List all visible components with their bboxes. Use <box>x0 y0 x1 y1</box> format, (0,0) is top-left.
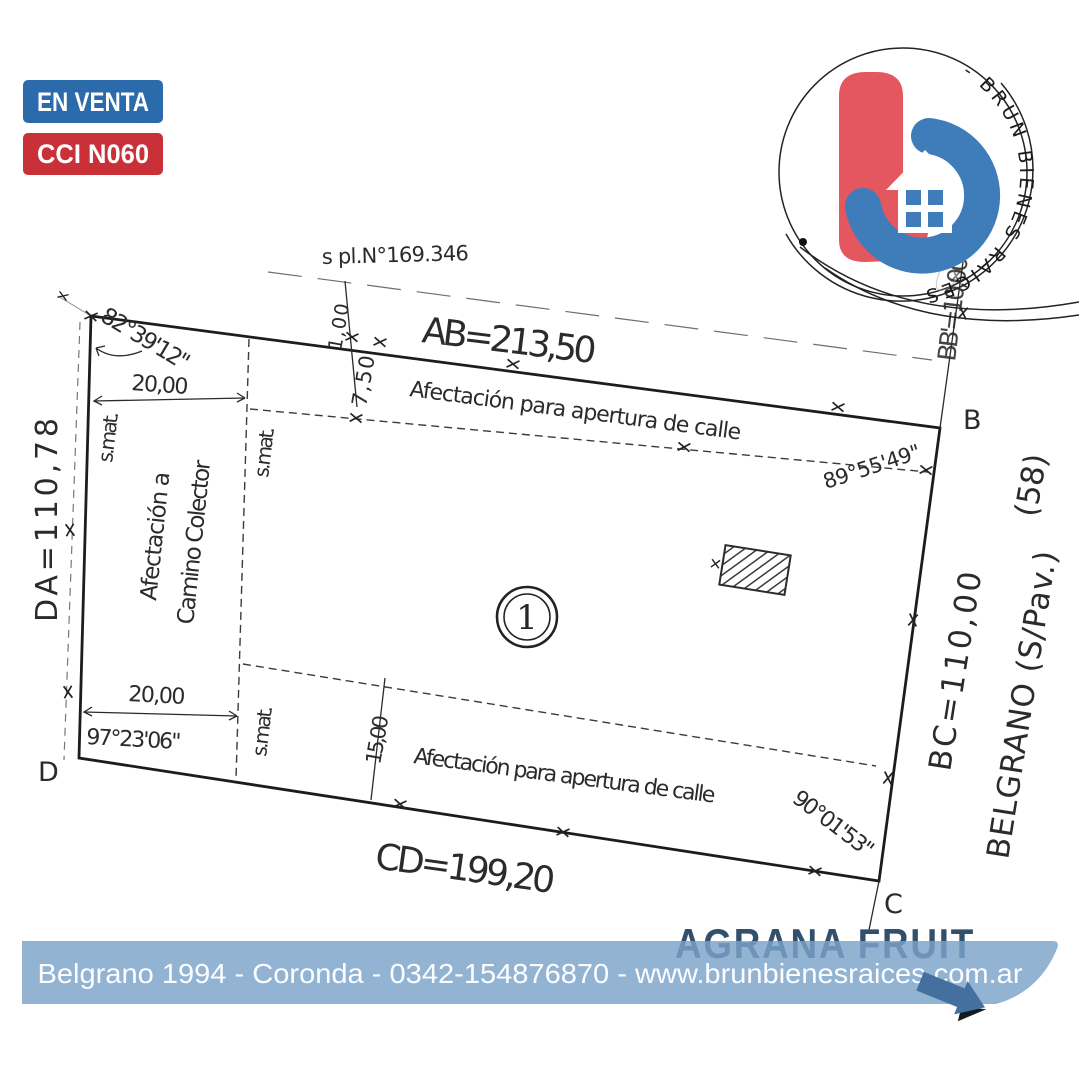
dim-bc-label: BC=110,00 <box>922 568 989 773</box>
affectation-left-line2: Camino Colector <box>173 458 216 626</box>
dim-20-bottom-label: 20,00 <box>128 682 187 710</box>
left-strip-line <box>236 339 249 779</box>
dim-cd-label: CD=199,20 <box>373 836 559 902</box>
neighbour-line <box>268 272 932 360</box>
survey-plan: 1 s pl.N°169.346 AB=213,50 Afectación pa… <box>30 241 1065 930</box>
angle-b-label: 89°55'49" <box>820 439 924 493</box>
lot-number-label: 1 <box>516 598 538 638</box>
smat-label-3: s.mat. <box>247 703 277 758</box>
affectation-top-label: Afectación para apertura de calle <box>408 377 743 446</box>
ab-extension <box>58 296 91 316</box>
affectation-left-line1: Afectación a <box>136 470 175 602</box>
status-badge-label: EN VENTA <box>37 87 149 117</box>
brand-logo: - BRUN BIENES RAICES <box>779 48 1079 321</box>
smat-label-1: s.mat. <box>93 409 123 464</box>
footer-contact-line: Belgrano 1994 - Coronda - 0342-154876870… <box>38 958 1023 989</box>
bottom-strip-line <box>243 664 876 766</box>
status-badges: EN VENTA CCI N060 <box>23 80 163 175</box>
corner-d-label: D <box>38 757 60 788</box>
dim-da-label: DA=110,78 <box>30 417 65 622</box>
dim-1-00-label: 1,00 <box>324 301 354 352</box>
corner-b-label: B <box>963 405 983 436</box>
angle-a-label: 82°39'12" <box>96 303 195 377</box>
plan-svg: 1 s pl.N°169.346 AB=213,50 Afectación pa… <box>0 0 1080 1080</box>
street-number-label: (58) <box>1008 450 1055 519</box>
lot-circle: 1 <box>497 587 557 647</box>
dim-20-top-label: 20,00 <box>131 371 191 400</box>
street-name-label: BELGRANO (S/Pav.) <box>980 547 1064 861</box>
dim-15-00-label: 15,00 <box>361 712 393 765</box>
plan-reference-label: s pl.N°169.346 <box>322 241 471 269</box>
building-hatch <box>708 543 790 595</box>
code-badge-label: CCI N060 <box>37 139 149 169</box>
flyer: 1 s pl.N°169.346 AB=213,50 Afectación pa… <box>0 0 1080 1080</box>
logo-dot <box>799 238 807 246</box>
affectation-bottom-label: Afectación para apertura de calle <box>412 744 718 809</box>
corner-c-label: C <box>884 889 904 920</box>
smat-label-2: s.mat. <box>249 424 279 479</box>
dim-line-20-bottom <box>84 712 237 716</box>
angle-d-label: 97°23'06" <box>86 725 183 755</box>
angle-c-label: 90°01'53" <box>787 786 879 864</box>
